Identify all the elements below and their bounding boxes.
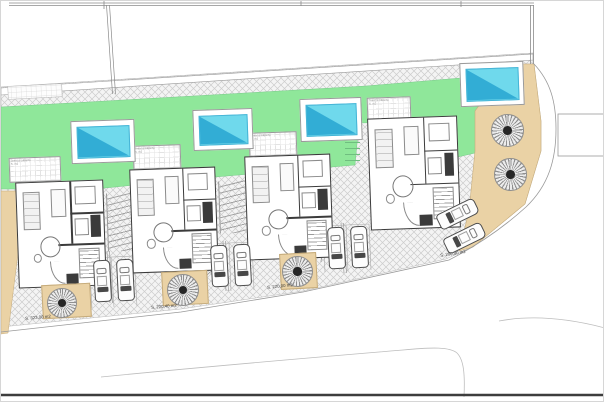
- car-seats: [120, 286, 132, 291]
- palm-tree-icon: [282, 256, 313, 287]
- road-curve-1: [101, 348, 464, 397]
- interior-wall: [424, 149, 457, 152]
- closet: [318, 188, 328, 210]
- pool-water: [305, 103, 357, 137]
- entrance-step: [67, 273, 79, 284]
- car-seats: [237, 271, 249, 276]
- car-roof: [120, 275, 131, 286]
- bed: [404, 126, 420, 156]
- ramp-2: [218, 181, 248, 234]
- car-icon: [327, 227, 346, 270]
- site-plan-canvas: Terraza cubierta S. m2 Terraza cubierta …: [0, 0, 604, 402]
- round-table: [268, 209, 289, 230]
- car-seats: [214, 272, 226, 277]
- round-table: [392, 175, 414, 198]
- interior-wall: [71, 212, 104, 215]
- car-windshield: [119, 267, 130, 274]
- pool-deep-shading: [199, 115, 247, 145]
- bath-fixture: [74, 218, 88, 235]
- chair: [33, 253, 42, 263]
- terrace-3: Terraza cubierta S. m2: [249, 131, 298, 157]
- chair: [386, 193, 395, 203]
- house-unit-3: [244, 154, 334, 261]
- door-swing: [163, 246, 179, 269]
- pool-deep-shading: [466, 68, 518, 101]
- car-windshield: [96, 268, 107, 275]
- boundary-ticks: [104, 1, 461, 9]
- boundary-top-line: [9, 3, 534, 6]
- car-windshield: [236, 252, 247, 259]
- door-swing: [403, 201, 420, 226]
- sofa: [23, 192, 41, 230]
- car-roof: [237, 260, 248, 271]
- closet: [444, 153, 454, 176]
- pool-3: [299, 97, 362, 142]
- palm-tree-icon: [167, 274, 199, 306]
- terrace-1: Terraza cubierta S. m2: [9, 156, 62, 183]
- entrance-step: [420, 214, 433, 225]
- terrace-label-2: S. m2: [369, 102, 376, 106]
- car-icon: [116, 259, 135, 302]
- chair: [147, 239, 156, 248]
- paving-detail-block: [8, 84, 63, 100]
- pool-water: [198, 114, 248, 146]
- palm-tree-icon: [494, 158, 527, 191]
- road-curve-2: [499, 318, 604, 328]
- bath-fixture: [428, 122, 450, 141]
- interior-wall: [183, 198, 215, 201]
- pool-deep-shading: [306, 104, 356, 136]
- terrace-label-2: S. m2: [11, 162, 18, 166]
- interior-wall: [58, 243, 104, 246]
- palm-tree-icon: [47, 288, 77, 318]
- bath-fixture: [302, 192, 316, 209]
- chair: [262, 226, 271, 235]
- house-unit-2: [129, 167, 219, 274]
- pool-water: [465, 67, 519, 102]
- car-roof: [331, 243, 342, 254]
- bath-fixture: [75, 186, 96, 204]
- car-roof: [214, 261, 225, 272]
- car-icon: [210, 245, 229, 288]
- entrance-step: [180, 258, 192, 269]
- car-windshield: [213, 253, 224, 260]
- interior-wall: [411, 182, 459, 185]
- sofa: [136, 179, 154, 216]
- sofa: [251, 166, 269, 203]
- car-windshield: [330, 235, 341, 242]
- car-windshield: [353, 234, 364, 241]
- palm-tree-icon: [491, 114, 524, 147]
- staircase: [306, 220, 327, 250]
- interior-wall: [298, 185, 330, 188]
- pool-1: [70, 119, 135, 164]
- sofa: [375, 129, 394, 169]
- car-seats: [97, 287, 109, 292]
- car-roof: [354, 242, 365, 253]
- car-seats: [354, 253, 366, 258]
- car-roof: [97, 276, 108, 287]
- terrace-2: Terraza cubierta S. m2: [133, 144, 182, 170]
- terrace-label-2: S. m2: [135, 150, 142, 154]
- pool-4: [459, 61, 524, 107]
- round-table: [153, 222, 174, 243]
- pool-2: [192, 108, 253, 151]
- interior-wall: [171, 229, 216, 232]
- bath-fixture: [187, 173, 208, 191]
- car-icon: [93, 260, 112, 303]
- car-icon: [233, 244, 252, 287]
- pool-water: [76, 125, 130, 159]
- pool-deep-shading: [77, 126, 129, 158]
- neighbor-building: [558, 114, 604, 156]
- car-seats: [331, 254, 343, 259]
- bath-fixture: [302, 160, 323, 178]
- bed: [51, 189, 67, 218]
- bath-fixture: [187, 205, 201, 222]
- interior-wall: [286, 216, 331, 219]
- closet: [90, 215, 100, 237]
- round-table: [40, 236, 61, 258]
- bath-fixture: [428, 157, 443, 175]
- car-icon: [350, 226, 369, 269]
- door-swing: [50, 261, 66, 284]
- closet: [203, 201, 213, 223]
- bed: [164, 176, 179, 204]
- bed: [279, 163, 294, 191]
